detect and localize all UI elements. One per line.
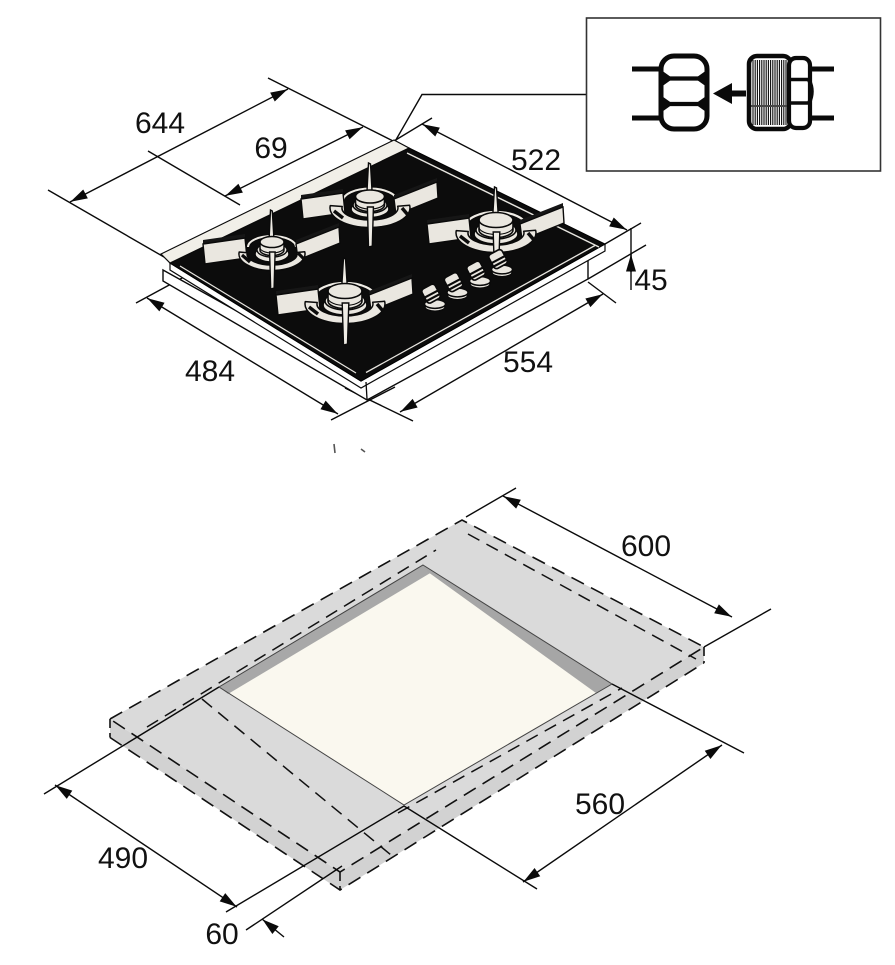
svg-text:560: 560 <box>575 788 625 821</box>
svg-text:45: 45 <box>634 264 667 297</box>
svg-text:490: 490 <box>98 842 148 875</box>
svg-text:522: 522 <box>511 144 561 177</box>
svg-text:69: 69 <box>254 132 287 165</box>
svg-text:484: 484 <box>185 355 235 388</box>
svg-text:554: 554 <box>503 346 553 379</box>
svg-text:60: 60 <box>205 918 238 951</box>
svg-text:600: 600 <box>621 530 671 563</box>
svg-text:644: 644 <box>135 107 185 140</box>
